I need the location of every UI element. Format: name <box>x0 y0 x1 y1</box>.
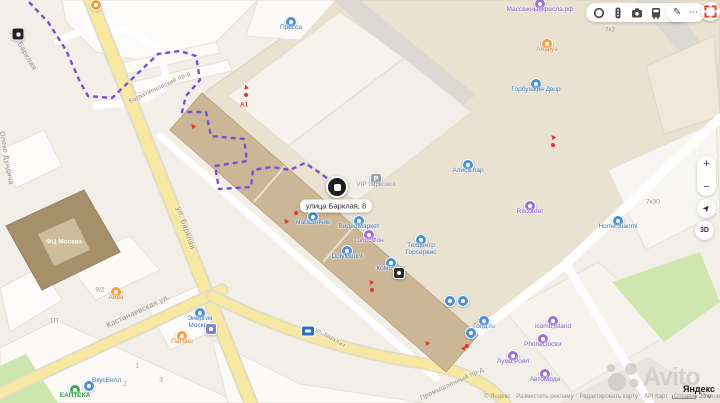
scale-label: 20 м <box>699 394 711 400</box>
more-icon[interactable]: ⋯ <box>688 8 698 18</box>
entrance-arrow-icon: ▲ <box>365 276 376 287</box>
poi-marker[interactable]: Пресса <box>285 16 297 28</box>
edit-icon[interactable]: ✎ <box>673 8 681 18</box>
poi-label: PhoneDoctor <box>524 341 562 348</box>
building-number: 7к3 <box>605 27 615 34</box>
building-number: 2 <box>123 381 127 388</box>
transit-icon[interactable] <box>650 7 662 19</box>
locate-button[interactable]: ➤ <box>697 199 716 218</box>
poi-icon <box>444 295 456 307</box>
street-label: Промышленный пр-д <box>419 366 485 402</box>
building-number: 1 <box>135 363 139 370</box>
poi-label: магазинчик <box>296 219 330 226</box>
zoom-control: + − <box>697 156 716 196</box>
street-label: ул. Барклая <box>314 327 346 349</box>
avito-logo-icon <box>603 360 643 394</box>
building-number: А1 <box>240 102 248 109</box>
poi-marker[interactable]: Айва <box>110 286 122 298</box>
poi-label: Recorder <box>517 208 544 215</box>
entrance-dot <box>294 211 298 215</box>
poi-label: ПаПаш <box>171 338 193 345</box>
poi-label: ВкусВилл <box>92 377 121 384</box>
poi-label: Техцентр Горсервис <box>399 242 443 257</box>
building-number: 1П <box>50 318 58 325</box>
poi-marker[interactable] <box>393 267 405 279</box>
entrance-dot <box>551 143 555 147</box>
poi-marker[interactable]: ПаПаш <box>176 330 188 342</box>
poi-label: Айва <box>109 294 124 301</box>
poi-marker[interactable]: Массажныекресла.рф <box>534 0 546 10</box>
poi-marker[interactable]: Home Xiaomi <box>612 215 624 227</box>
attribution-link[interactable]: API Карт <box>644 394 668 400</box>
poi-label: ЕАПТЕКА <box>60 392 91 399</box>
poi-icon <box>205 323 217 335</box>
address-pin[interactable] <box>326 176 348 198</box>
expand-map-button[interactable] <box>701 2 720 21</box>
street-label: ул. Барклая <box>174 205 197 250</box>
fullscreen-icon <box>704 5 717 18</box>
poi-label: Home Xiaomi <box>598 223 637 230</box>
entrance-arrow-icon: ▲ <box>421 337 432 348</box>
traffic-icon[interactable] <box>612 7 624 19</box>
building-number: 7к30 <box>646 199 660 206</box>
poi-label: icomb island <box>535 323 571 330</box>
poi-marker[interactable]: ВидеоМаркет <box>353 215 365 227</box>
poi-marker[interactable]: АвтоМода <box>539 368 551 380</box>
poi-marker[interactable]: icomb island <box>547 315 559 327</box>
mini-marker-icon[interactable] <box>12 28 25 41</box>
poi-label: Массажныекресла.рф <box>507 6 574 13</box>
entrance-arrow-icon: ▲ <box>280 215 291 226</box>
poi-marker[interactable]: Amaiya <box>541 38 553 50</box>
address-chip: улица Барклая, 8 <box>300 200 372 213</box>
street-label: Багратионовский пр-д <box>128 71 192 105</box>
poi-label: VIP парковка <box>356 181 396 188</box>
entrance-arrow-icon: ▲ <box>547 131 558 142</box>
entrance-arrow-icon: ▲ <box>241 82 251 92</box>
poi-icon <box>465 327 477 339</box>
poi-marker[interactable]: ЕАПТЕКА <box>69 384 81 396</box>
yandex-logo[interactable]: Яндекс <box>683 384 715 394</box>
poi-marker[interactable]: Горбушкин Двор <box>530 78 542 90</box>
poi-marker[interactable]: Техцентр Горсервис <box>415 234 427 246</box>
poi-marker[interactable] <box>465 327 477 339</box>
poi-label: ГолосФон <box>354 237 383 244</box>
poi-marker[interactable]: PVIP парковка <box>370 173 382 185</box>
attribution-link[interactable]: Разместить рекламу <box>516 394 573 400</box>
building-number: ФЦ Москва <box>46 239 82 246</box>
zoom-in-button[interactable]: + <box>697 159 716 170</box>
poi-marker[interactable]: Алиса пар <box>462 159 474 171</box>
building-number: 3 <box>159 377 163 384</box>
poi-marker[interactable]: Recorder <box>524 200 536 212</box>
building-number: 9/2 <box>95 287 104 294</box>
locate-arrow-icon: ➤ <box>701 203 713 215</box>
poi-marker[interactable] <box>90 0 102 11</box>
poi-label: АвтоМода <box>530 376 561 383</box>
map-canvas[interactable]: ул. БарклаяОлеко Дундичаул. БарклаяКаста… <box>0 0 720 403</box>
poi-marker[interactable] <box>457 295 469 307</box>
shop-icon <box>334 184 341 191</box>
copyright: © Яндекс <box>484 394 510 400</box>
bus-stop-icon[interactable] <box>301 326 315 337</box>
poi-marker[interactable]: Лума Роял <box>507 350 519 362</box>
entrance-arrow-icon: ▲ <box>187 120 198 131</box>
poi-marker[interactable]: Энергия Москвы <box>194 307 206 319</box>
route-ring-icon[interactable] <box>593 7 605 19</box>
poi-marker[interactable] <box>444 295 456 307</box>
entrance-dot <box>370 288 374 292</box>
street-label: Олеко Дундича <box>0 131 14 185</box>
entrance-dot <box>465 344 469 348</box>
poi-marker[interactable]: Голд.ru <box>478 315 490 327</box>
poi-marker[interactable]: ГолосФон <box>363 229 375 241</box>
map-tools-toolbar: ✎ ⋯ <box>666 3 705 22</box>
poi-marker[interactable]: DolyMount <box>341 245 353 257</box>
camera-icon[interactable] <box>631 7 643 19</box>
poi-marker[interactable]: ВкусВилл <box>83 380 95 392</box>
poi-marker[interactable]: магазинчик <box>307 211 319 223</box>
poi-marker[interactable]: PhoneDoctor <box>537 333 549 345</box>
poi-label: Amaiya <box>536 46 558 53</box>
poi-label: Пресса <box>280 24 302 31</box>
poi-marker[interactable] <box>205 323 217 335</box>
poi-label: DolyMount <box>331 253 362 260</box>
poi-label: Лума Роял <box>497 358 529 365</box>
poi-icon <box>457 295 469 307</box>
poi-label: Горбушкин Двор <box>511 86 560 93</box>
scale-line <box>672 395 696 399</box>
entrance-dot <box>244 93 248 97</box>
zoom-out-button[interactable]: − <box>697 182 716 193</box>
poi-icon <box>90 0 102 11</box>
scale-ruler: 20 м <box>672 394 711 400</box>
poi-label: Алиса пар <box>452 167 483 174</box>
poi-icon <box>393 267 405 279</box>
attribution-link[interactable]: Редактировать карту <box>580 394 638 400</box>
tilt-3d-button[interactable]: 3D <box>695 221 714 240</box>
